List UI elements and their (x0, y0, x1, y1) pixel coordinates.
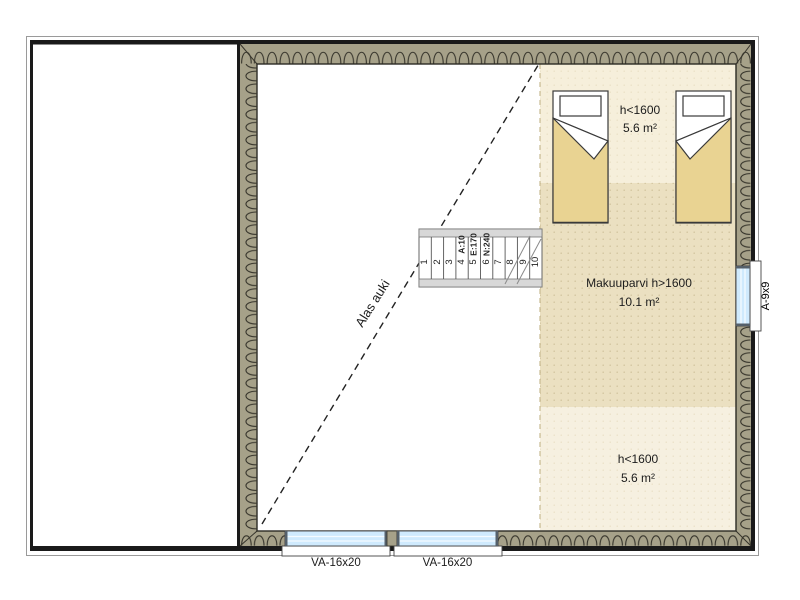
stair-tread-number: 2 (432, 252, 444, 272)
window-sill (394, 546, 502, 556)
window-glazing (285, 531, 387, 546)
stair-tread-number: 9 (518, 252, 530, 272)
stair-spec-going: E:170 (469, 230, 480, 260)
window-label-right: A-9x9 (760, 271, 772, 321)
room-area-upper-low-headroom: 5.6 m² (590, 122, 690, 136)
window-label-bottom-left: VA-16x20 (286, 557, 386, 570)
stair-tread-number: 7 (493, 252, 505, 272)
stair-tread-number: 1 (419, 252, 431, 272)
stair-spec-rise: N:240 (481, 230, 492, 260)
stair-tread-number: 10 (530, 252, 542, 272)
room-area-lower-low-headroom: 5.6 m² (588, 472, 688, 486)
window-bottom-left (282, 531, 390, 556)
room-area-sleeping-loft: 10.1 m² (564, 296, 714, 310)
stair-tread-number: 8 (505, 252, 517, 272)
window-sill (282, 546, 390, 556)
window-pier (387, 531, 397, 546)
window-label-bottom-right: VA-16x20 (397, 557, 498, 570)
floor-plan: h<1600 5.6 m² Makuuparvi h>1600 10.1 m² … (0, 0, 800, 600)
stair-stringer-top (419, 229, 542, 237)
window-bottom-right (394, 531, 502, 556)
stair-tread-number: 3 (444, 252, 456, 272)
room-label-lower-low-headroom: h<1600 (588, 453, 688, 467)
window-right (736, 261, 761, 331)
room-label-sleeping-loft: Makuuparvi h>1600 (564, 277, 714, 291)
stair-spec-steps: A:10 (457, 230, 468, 260)
window-glazing (736, 266, 750, 326)
window-glazing (397, 531, 498, 546)
stair-stringer-bottom (419, 279, 542, 287)
room-label-upper-low-headroom: h<1600 (590, 104, 690, 118)
